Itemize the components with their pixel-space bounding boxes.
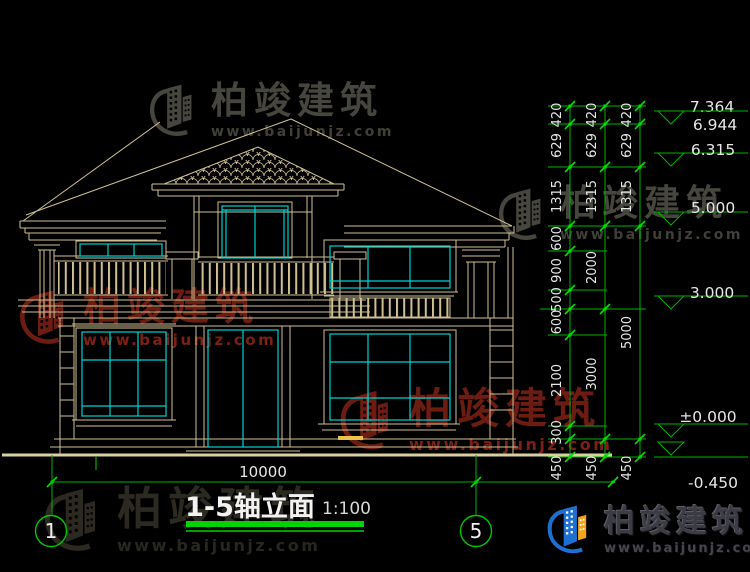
dimension-label: 2000 xyxy=(585,251,600,284)
dimension-tick-dot xyxy=(639,438,642,441)
elevation-value: 6.944 xyxy=(693,116,737,134)
axis-number: 5 xyxy=(470,519,483,543)
dimension-label: 2100 xyxy=(550,364,565,397)
elevation-marker-triangle xyxy=(658,111,684,124)
dimension-tick-dot xyxy=(639,456,642,459)
dimension-label: 600 xyxy=(550,226,565,251)
dimension-label: 629 xyxy=(620,133,635,158)
dimension-tick-dot xyxy=(604,438,607,441)
axis-bubble-1: 1 xyxy=(36,455,67,547)
dimension-label: 600 xyxy=(550,310,565,335)
dimension-label: 500 xyxy=(550,287,565,312)
dimension-tick-dot xyxy=(604,308,607,311)
dimension-label: 1315 xyxy=(550,180,565,213)
drawing-title: 1-5轴立面 xyxy=(185,491,315,523)
dimension-tick-dot xyxy=(639,166,642,169)
dimension-tick-dot xyxy=(569,105,572,108)
brand-url: www.baijunjz.com xyxy=(604,541,750,556)
dimension-tick-dot xyxy=(569,225,572,228)
elevation-value: 3.000 xyxy=(690,284,734,302)
elevation-marker-triangle xyxy=(658,153,684,166)
dimension-tick-dot xyxy=(604,105,607,108)
dimension-tick-dot xyxy=(604,225,607,228)
elevation-marker-triangle xyxy=(658,296,684,309)
lower-right-window-surround xyxy=(318,326,460,430)
dimension-tick-dot xyxy=(604,166,607,169)
axis-number: 1 xyxy=(45,519,58,543)
dimension-label: 1315 xyxy=(620,180,635,213)
ground-line xyxy=(2,436,612,470)
dimension-label: 10000 xyxy=(239,463,287,481)
brand-text: 柏竣建筑 xyxy=(604,507,750,538)
elevation-value: 7.364 xyxy=(690,98,734,116)
axis-bubble-5: 5 xyxy=(461,455,492,547)
bottom-dimension: 10000 xyxy=(47,463,618,487)
dimension-tick-dot xyxy=(639,225,642,228)
dimension-label: 629 xyxy=(585,133,600,158)
dimension-tick-dot xyxy=(604,123,607,126)
elevation-value: 6.315 xyxy=(691,141,735,159)
lower-left-window xyxy=(82,332,166,416)
dimension-label: 300 xyxy=(550,420,565,445)
plinth xyxy=(50,439,518,447)
dimension-tick-dot xyxy=(569,289,572,292)
right-column xyxy=(462,250,500,318)
dimension-tick-dot xyxy=(569,425,572,428)
dimension-tick-dot xyxy=(569,438,572,441)
dimension-label: 420 xyxy=(550,103,565,128)
elevation-marker-triangle xyxy=(658,212,684,225)
entry-door xyxy=(208,330,278,447)
cad-viewport: 柏竣建筑 www.baijunjz.com 柏竣建筑 www.baijunjz.… xyxy=(0,0,750,572)
drawing-scale: 1:100 xyxy=(322,499,371,519)
dimension-label: 450 xyxy=(550,456,565,481)
house-linework xyxy=(18,119,518,455)
dimension-tick-dot xyxy=(569,166,572,169)
floor-band xyxy=(58,318,513,326)
dimension-label: 3000 xyxy=(585,357,600,390)
dimension-label: 5000 xyxy=(620,316,635,349)
tower-roof xyxy=(152,147,344,196)
brand-logo-icon xyxy=(544,503,596,559)
dimension-label: 1315 xyxy=(585,180,600,213)
dimension-label: 450 xyxy=(585,456,600,481)
dimension-tick-dot xyxy=(569,250,572,253)
elevation-marker-triangle xyxy=(658,442,684,455)
balcony-door xyxy=(222,206,288,258)
dimension-columns: 4206291315600900500600210030045042062913… xyxy=(550,101,645,480)
left-strip-window xyxy=(80,244,162,256)
title-block: 1-5轴立面 1:100 xyxy=(185,491,371,531)
dimension-tick-dot xyxy=(569,308,572,311)
dimension-tick-dot xyxy=(569,334,572,337)
dimension-label: 420 xyxy=(585,103,600,128)
dimension-tick-dot xyxy=(604,456,607,459)
dimension-label: 629 xyxy=(550,133,565,158)
dimension-tick-dot xyxy=(569,456,572,459)
lower-right-window xyxy=(330,334,450,420)
dimension-tick-dot xyxy=(639,123,642,126)
brand-logo: 柏竣建筑 www.baijunjz.com xyxy=(544,503,750,559)
elevation-value: ±0.000 xyxy=(679,408,736,426)
dimension-tick-dot xyxy=(569,123,572,126)
dimension-label: 450 xyxy=(620,456,635,481)
dimension-tick-dot xyxy=(612,481,615,484)
title-underline xyxy=(186,521,364,527)
dimension-label: 900 xyxy=(550,258,565,283)
elevation-markers: 7.3646.9446.3155.0003.000±0.000-0.450 xyxy=(654,98,748,492)
dimension-tick-dot xyxy=(639,105,642,108)
cad-drawing: 4206291315600900500600210030045042062913… xyxy=(0,0,750,572)
ground-step-mark xyxy=(338,436,363,440)
dimension-label: 420 xyxy=(620,103,635,128)
elevation-value: 5.000 xyxy=(691,199,735,217)
lower-left-window-surround xyxy=(72,324,176,426)
elevation-value: -0.450 xyxy=(688,474,738,492)
